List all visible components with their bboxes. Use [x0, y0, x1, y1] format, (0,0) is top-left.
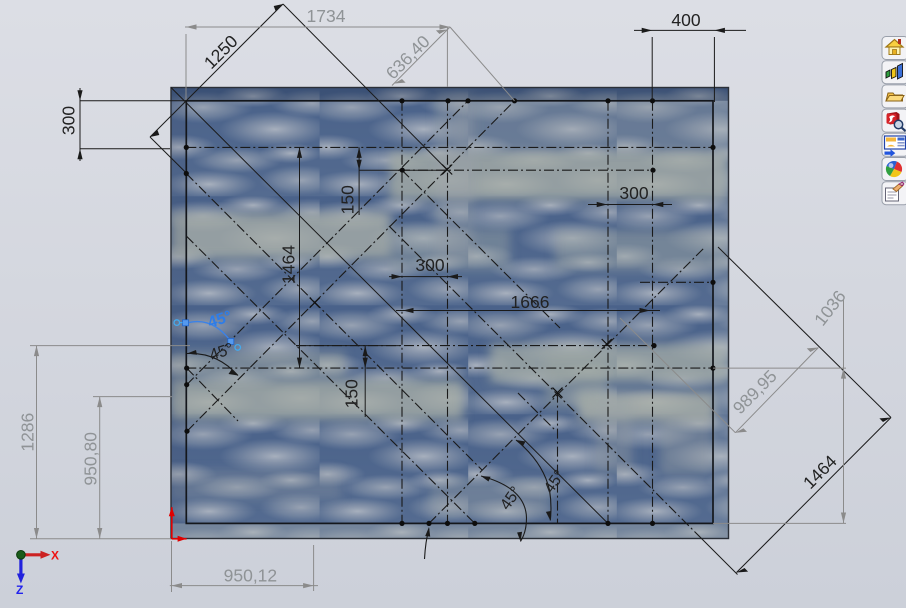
svg-text:989,95: 989,95: [729, 366, 781, 418]
svg-text:300: 300: [415, 255, 444, 275]
svg-text:150: 150: [338, 185, 358, 214]
svg-text:X: X: [51, 549, 59, 563]
svg-text:950,80: 950,80: [80, 432, 100, 486]
svg-text:1734: 1734: [307, 6, 346, 26]
svg-text:Z: Z: [16, 583, 23, 597]
svg-text:636,40: 636,40: [382, 31, 434, 83]
svg-text:950,12: 950,12: [224, 566, 278, 586]
svg-text:300: 300: [59, 106, 79, 135]
svg-text:1464: 1464: [279, 245, 299, 284]
svg-text:150: 150: [342, 379, 362, 408]
svg-text:1286: 1286: [18, 413, 38, 452]
svg-text:1666: 1666: [511, 292, 550, 312]
svg-text:400: 400: [671, 10, 700, 30]
svg-text:300: 300: [619, 183, 648, 203]
svg-text:1464: 1464: [799, 451, 841, 493]
